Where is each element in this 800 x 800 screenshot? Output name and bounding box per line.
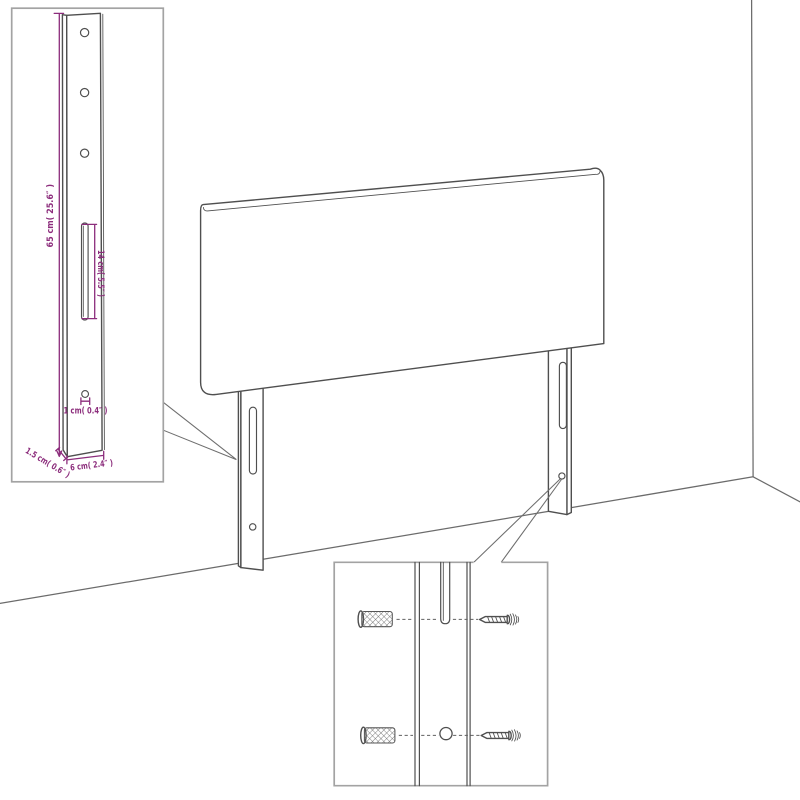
post-hole-2 (81, 89, 89, 97)
headboard-assembly-diagram: 65 cm( 25.6″ ) 14 cm( 5.5″ ) 1 cm( 0.4″ … (0, 0, 800, 800)
wall-plug-icon-top (358, 611, 392, 627)
width-dimension-label: 6 cm( 2.4″ ) (70, 458, 114, 473)
slot-dimension-label: 14 cm( 5.5″ ) (95, 250, 105, 297)
post-hole-3 (81, 149, 89, 157)
leg-detail-callout (163, 402, 236, 459)
post-slot (82, 223, 89, 320)
right-leg-screw-hole (559, 473, 565, 479)
left-leg-slot (249, 407, 256, 474)
post-small-hole (82, 391, 89, 398)
hole-dimension-label: 1 cm( 0.4″ ) (64, 407, 108, 417)
panel-outline (201, 168, 604, 394)
right-mounting-leg (548, 344, 571, 515)
left-mounting-leg (238, 387, 263, 570)
floor-line-right (753, 477, 800, 502)
hardware-detail-inset (334, 562, 547, 785)
post-hole-1 (81, 28, 89, 36)
wall-plug-icon-bottom (361, 727, 395, 743)
leg-callout-lines (163, 402, 236, 459)
leg-post-drawing (62, 13, 104, 456)
wall-corner-edge (752, 0, 754, 477)
height-dimension-label: 65 cm( 25.6″ ) (46, 184, 56, 248)
leg-dimension-inset: 65 cm( 25.6″ ) 14 cm( 5.5″ ) 1 cm( 0.4″ … (12, 8, 164, 482)
left-leg-screw-hole (250, 524, 256, 530)
headboard-panel (201, 168, 604, 394)
right-leg-slot (559, 362, 566, 428)
post-right-edge (103, 14, 105, 449)
headboard-assembly (201, 168, 604, 570)
diagram-canvas: 65 cm( 25.6″ ) 14 cm( 5.5″ ) 1 cm( 0.4″ … (0, 0, 800, 800)
